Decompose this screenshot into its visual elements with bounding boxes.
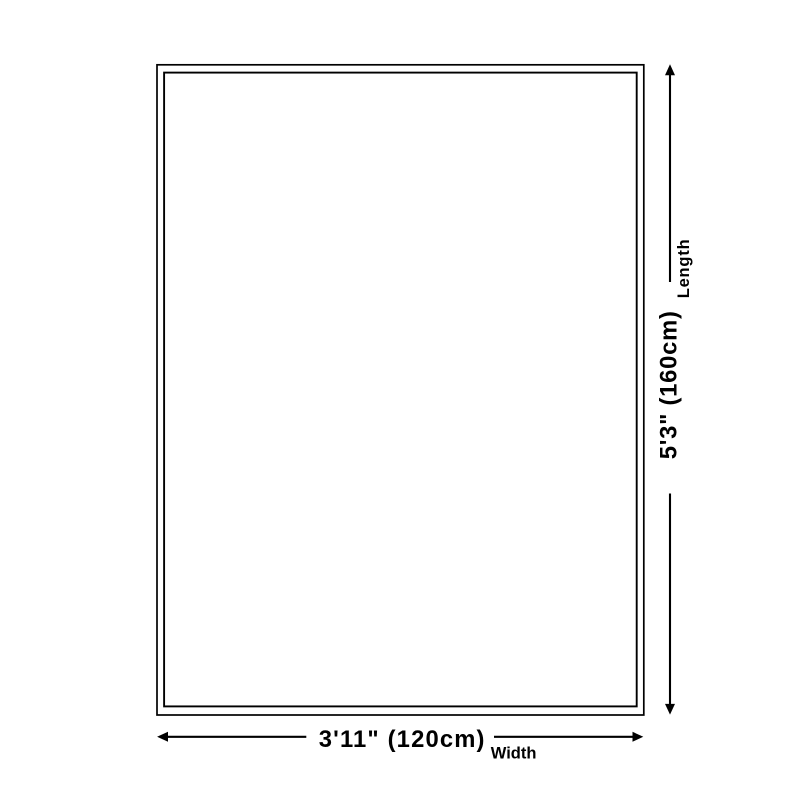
svg-text:5'3" (160cm): 5'3" (160cm) [655, 310, 682, 459]
svg-text:Length: Length [675, 239, 693, 299]
svg-text:3'11" (120cm): 3'11" (120cm) [319, 726, 486, 753]
svg-text:Width: Width [491, 745, 537, 763]
